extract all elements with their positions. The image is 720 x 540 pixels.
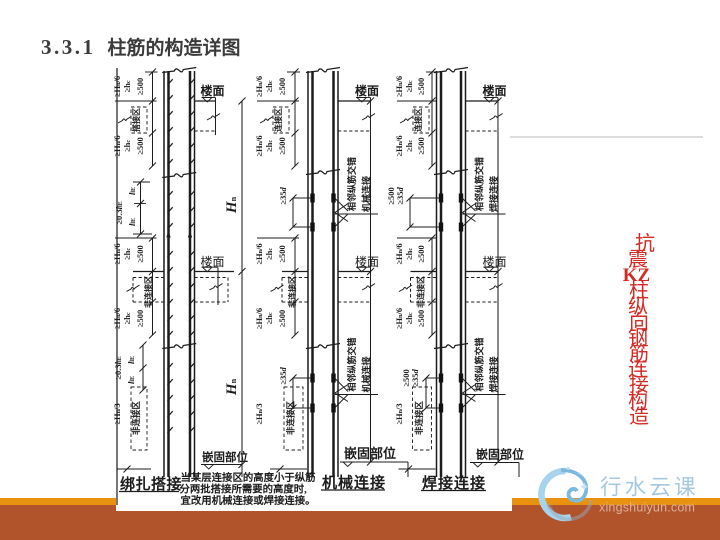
- svg-text:嵌固部位: 嵌固部位: [202, 450, 248, 464]
- svg-text:楼面: 楼面: [483, 83, 507, 98]
- svg-text:非连接区: 非连接区: [286, 401, 296, 436]
- svg-text:llE: llE: [127, 218, 137, 226]
- svg-text:≥0.3llE: ≥0.3llE: [113, 356, 123, 379]
- svg-text:≥Hn/6: ≥Hn/6: [394, 135, 404, 156]
- svg-text:连接区: 连接区: [273, 108, 283, 132]
- svg-text:≥hc: ≥hc: [264, 140, 274, 152]
- svg-text:相邻纵筋交错: 相邻纵筋交错: [346, 337, 357, 391]
- svg-text:≥hc: ≥hc: [404, 312, 414, 324]
- svg-text:机械连接: 机械连接: [322, 474, 386, 492]
- svg-text:楼面: 楼面: [201, 83, 225, 98]
- svg-text:非连接区: 非连接区: [287, 276, 297, 308]
- svg-text:焊接连接: 焊接连接: [422, 474, 486, 492]
- svg-text:llE: llE: [127, 187, 137, 195]
- svg-text:≥500: ≥500: [135, 137, 145, 154]
- svg-text:分两批搭接所需要的高度时,: 分两批搭接所需要的高度时,: [180, 483, 308, 496]
- svg-text:≥Hn/6: ≥Hn/6: [394, 308, 404, 329]
- svg-text:≥500: ≥500: [277, 78, 287, 95]
- svg-text:机械连接: 机械连接: [361, 356, 372, 392]
- svg-text:≥35d: ≥35d: [410, 369, 420, 387]
- svg-text:≥500: ≥500: [277, 137, 287, 154]
- svg-text:≥500: ≥500: [135, 78, 145, 95]
- svg-text:绑扎搭接: 绑扎搭接: [120, 475, 182, 493]
- svg-text:搭接区: 搭接区: [131, 108, 141, 132]
- svg-text:相邻纵筋交错: 相邻纵筋交错: [474, 157, 485, 211]
- svg-text:≥Hn/3: ≥Hn/3: [254, 403, 264, 424]
- svg-text:焊接连接: 焊接连接: [488, 356, 499, 392]
- svg-text:xingshuiyun.com: xingshuiyun.com: [599, 501, 695, 515]
- svg-text:≥hc: ≥hc: [122, 80, 132, 92]
- svg-text:≥500: ≥500: [135, 245, 145, 262]
- svg-text:≥Hn/6: ≥Hn/6: [254, 135, 264, 156]
- svg-text:≥hc: ≥hc: [404, 140, 414, 152]
- svg-text:≥Hn/6: ≥Hn/6: [254, 243, 264, 264]
- svg-text:≥500: ≥500: [277, 245, 287, 262]
- svg-text:≥hc: ≥hc: [122, 248, 132, 260]
- svg-text:≥hc: ≥hc: [264, 248, 274, 260]
- svg-text:≥Hn/6: ≥Hn/6: [254, 76, 264, 97]
- svg-text:≥hc: ≥hc: [404, 80, 414, 92]
- svg-text:≥Hn/6: ≥Hn/6: [394, 76, 404, 97]
- svg-text:≥500: ≥500: [416, 245, 426, 262]
- svg-text:相邻纵筋交错: 相邻纵筋交错: [346, 157, 357, 211]
- svg-text:楼面: 楼面: [355, 83, 379, 98]
- svg-text:llE: llE: [126, 376, 136, 384]
- svg-text:≥500: ≥500: [277, 310, 287, 327]
- svg-text:≥Hn/3: ≥Hn/3: [394, 403, 404, 424]
- svg-text:嵌固部位: 嵌固部位: [344, 446, 396, 461]
- svg-text:≥0.3llE: ≥0.3llE: [114, 201, 124, 224]
- svg-text:非连接区: 非连接区: [414, 401, 424, 436]
- svg-text:≥hc: ≥hc: [264, 312, 274, 324]
- svg-text:≥35d: ≥35d: [278, 367, 288, 385]
- svg-text:焊接连接: 焊接连接: [488, 176, 499, 212]
- svg-text:Hn: Hn: [224, 196, 240, 214]
- svg-text:机械连接: 机械连接: [361, 176, 372, 212]
- svg-text:非连接区: 非连接区: [131, 401, 141, 436]
- svg-text:相邻纵筋交错: 相邻纵筋交错: [474, 337, 485, 391]
- svg-text:Hn: Hn: [224, 378, 240, 396]
- svg-text:≥500: ≥500: [416, 137, 426, 154]
- svg-text:≥hc: ≥hc: [122, 140, 132, 152]
- svg-text:≥35d: ≥35d: [395, 187, 405, 205]
- svg-text:连接区: 连接区: [413, 108, 423, 132]
- svg-text:宜改用机械连接或焊接连接。: 宜改用机械连接或焊接连接。: [181, 494, 316, 507]
- svg-text:当某层连接区的高度小于纵筋: 当某层连接区的高度小于纵筋: [181, 471, 316, 484]
- svg-text:≥Hn/6: ≥Hn/6: [254, 308, 264, 329]
- svg-text:非连接区: 非连接区: [416, 276, 426, 308]
- svg-text:llE: llE: [126, 356, 136, 364]
- svg-text:≥500: ≥500: [135, 310, 145, 327]
- svg-text:≥500: ≥500: [416, 78, 426, 95]
- svg-text:≥hc: ≥hc: [122, 312, 132, 324]
- svg-text:≥Hn/6: ≥Hn/6: [394, 243, 404, 264]
- svg-text:≥hc: ≥hc: [264, 80, 274, 92]
- svg-text:行水云课: 行水云课: [600, 476, 699, 500]
- svg-text:嵌固部位: 嵌固部位: [476, 447, 524, 462]
- svg-text:≥500: ≥500: [416, 310, 426, 327]
- svg-text:≥hc: ≥hc: [404, 248, 414, 260]
- svg-text:≥35d: ≥35d: [278, 187, 288, 205]
